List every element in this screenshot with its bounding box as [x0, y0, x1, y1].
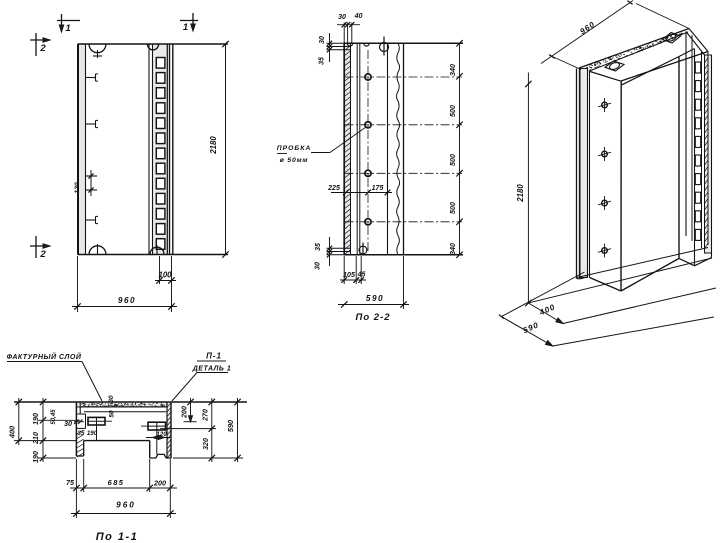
svg-text:190: 190 [33, 413, 40, 425]
svg-text:500: 500 [448, 154, 457, 166]
svg-text:500: 500 [448, 105, 457, 117]
svg-text:1: 1 [183, 22, 188, 33]
svg-text:340: 340 [448, 64, 457, 76]
svg-text:1: 1 [65, 23, 70, 34]
svg-text:400: 400 [537, 302, 557, 317]
svg-text:2: 2 [39, 249, 46, 260]
svg-text:400: 400 [8, 425, 17, 439]
svg-text:ФАКТУРНЫЙ СЛОЙ: ФАКТУРНЫЙ СЛОЙ [7, 352, 82, 361]
svg-text:590: 590 [366, 294, 384, 303]
svg-text:ø 50мм: ø 50мм [280, 157, 308, 164]
svg-text:ПРОБКА: ПРОБКА [277, 145, 312, 152]
svg-text:2180: 2180 [209, 136, 218, 155]
svg-text:960: 960 [578, 20, 597, 37]
svg-text:685: 685 [108, 478, 125, 487]
svg-text:960: 960 [118, 296, 136, 305]
svg-text:35: 35 [315, 243, 322, 251]
svg-text:П-1: П-1 [206, 352, 222, 361]
svg-text:120: 120 [74, 182, 81, 194]
svg-text:30: 30 [338, 14, 346, 21]
svg-text:340: 340 [448, 243, 457, 255]
svg-text:590: 590 [226, 419, 235, 432]
svg-text:30: 30 [315, 262, 322, 270]
svg-text:По 1-1: По 1-1 [96, 531, 139, 543]
svg-text:960: 960 [116, 501, 136, 510]
svg-text:120: 120 [156, 431, 167, 438]
svg-text:По 2-2: По 2-2 [355, 312, 390, 323]
svg-text:30: 30 [108, 395, 115, 403]
svg-text:40: 40 [354, 13, 363, 20]
svg-text:2: 2 [39, 43, 46, 54]
svg-text:175: 175 [372, 185, 384, 192]
svg-text:2180: 2180 [516, 184, 525, 203]
svg-text:ДЕТАЛЬ 1: ДЕТАЛЬ 1 [192, 366, 231, 373]
svg-text:35: 35 [319, 57, 326, 65]
svg-text:590: 590 [522, 320, 541, 335]
svg-text:210: 210 [33, 432, 40, 445]
svg-text:200: 200 [153, 479, 166, 488]
svg-text:50: 50 [109, 410, 116, 418]
svg-text:500: 500 [448, 202, 457, 214]
svg-text:75: 75 [66, 478, 75, 487]
svg-text:30: 30 [319, 36, 326, 44]
svg-text:35: 35 [78, 430, 85, 437]
svg-text:200: 200 [182, 406, 189, 419]
svg-text:320: 320 [203, 438, 210, 450]
svg-text:270: 270 [203, 409, 210, 422]
svg-text:45: 45 [357, 272, 366, 279]
svg-text:50,45: 50,45 [51, 409, 57, 425]
svg-text:190: 190 [33, 451, 40, 463]
svg-text:190: 190 [87, 430, 98, 437]
svg-text:100: 100 [158, 271, 172, 280]
svg-text:225: 225 [327, 185, 340, 192]
svg-text:105: 105 [343, 272, 355, 279]
